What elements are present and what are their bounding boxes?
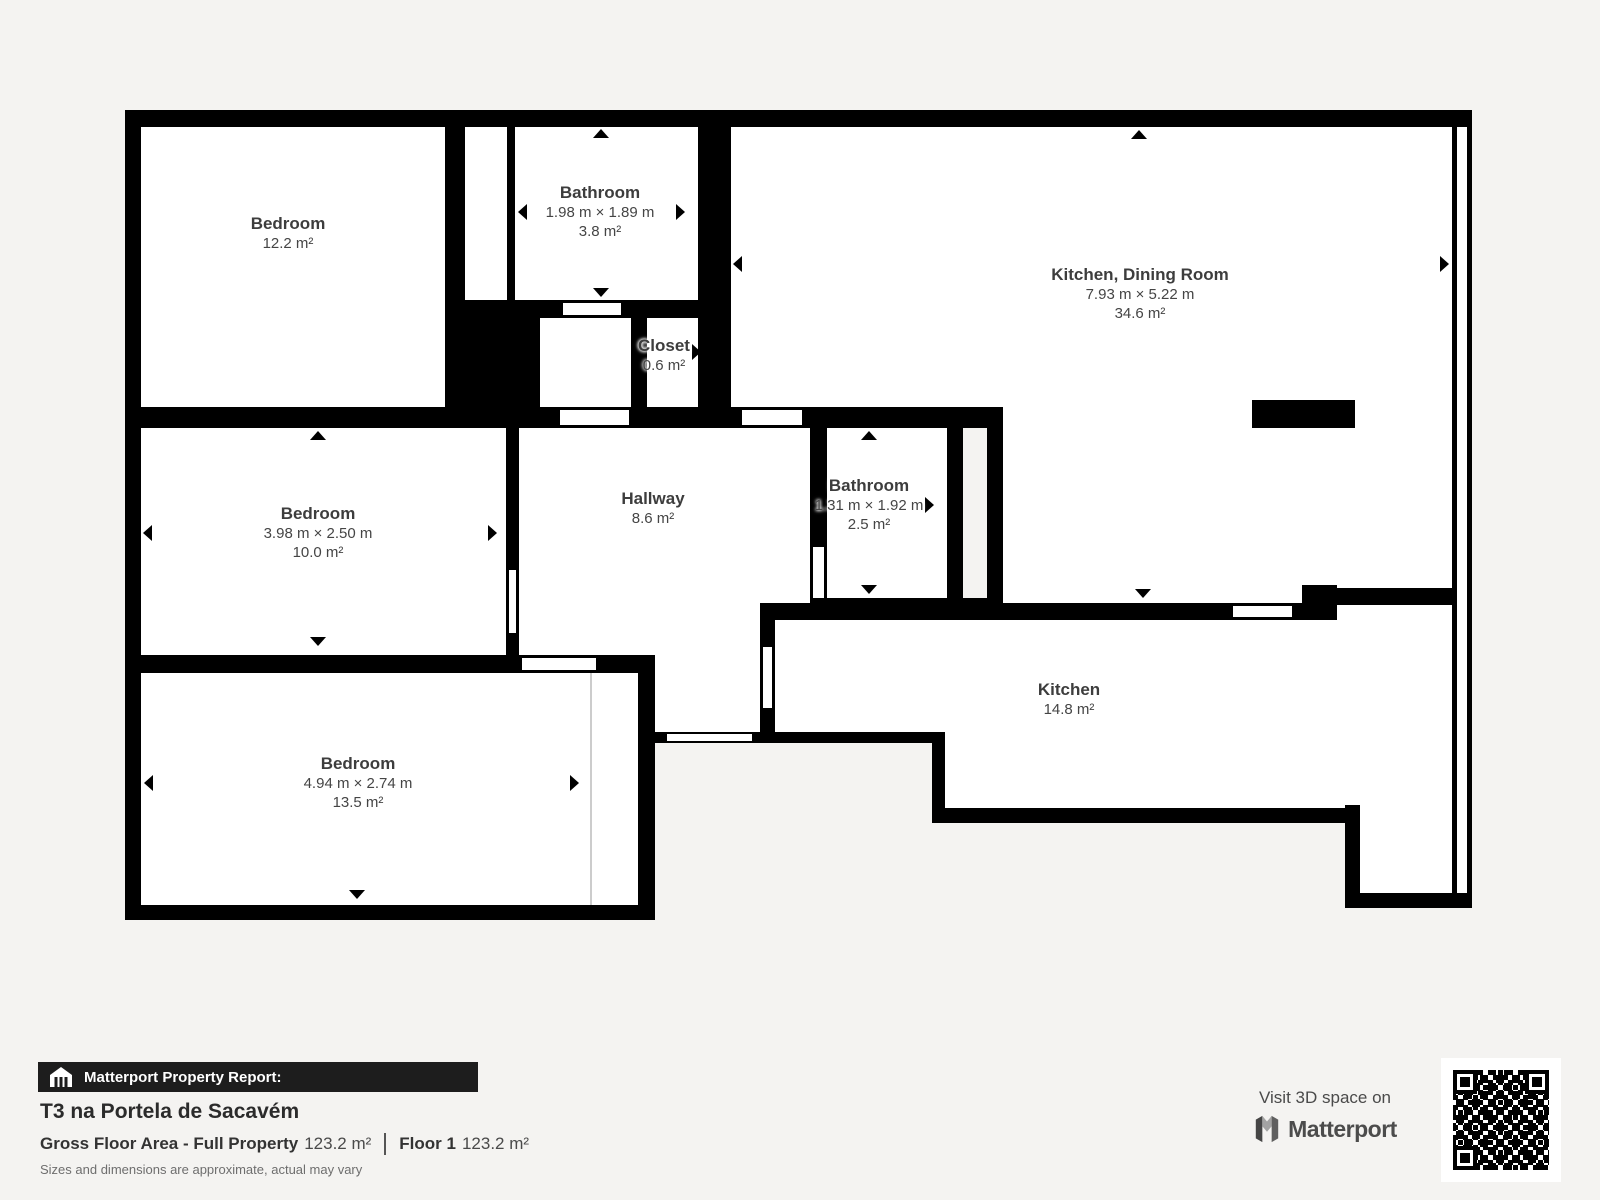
qr-finder xyxy=(1525,1070,1549,1094)
room-dims: 7.93 m × 5.22 m xyxy=(1051,285,1229,304)
visit-3d-block: Visit 3D space on Matterport xyxy=(1230,1088,1420,1144)
wall xyxy=(596,655,655,673)
room-name: Kitchen, Dining Room xyxy=(1051,265,1229,285)
wall xyxy=(638,655,655,920)
room-area: 0.6 m² xyxy=(638,356,690,375)
measure-arrow-down xyxy=(593,288,609,297)
qr-pattern xyxy=(1453,1070,1549,1170)
floor-value: 123.2 m² xyxy=(462,1134,529,1154)
room-label-hallway: Hallway 8.6 m² xyxy=(621,489,684,528)
door-opening xyxy=(760,647,775,708)
matterport-logo: Matterport xyxy=(1230,1114,1420,1144)
disclaimer-text: Sizes and dimensions are approximate, ac… xyxy=(40,1162,362,1177)
wall xyxy=(987,428,1003,603)
window-frame xyxy=(1467,110,1472,908)
report-header-label: Matterport Property Report: xyxy=(84,1069,282,1086)
property-title: T3 na Portela de Sacavém xyxy=(40,1100,299,1124)
measure-arrow-up xyxy=(349,659,365,668)
room-dims: 1.98 m × 1.89 m xyxy=(546,203,655,222)
measure-arrow-right xyxy=(925,497,934,513)
door-opening xyxy=(560,407,629,428)
room-dims: 4.94 m × 2.74 m xyxy=(304,774,413,793)
wall xyxy=(125,110,141,920)
room-dims: 1.31 m × 1.92 m xyxy=(815,496,924,515)
measure-arrow-up xyxy=(593,129,609,138)
wall xyxy=(445,126,465,306)
measure-arrow-right xyxy=(570,775,579,791)
wall xyxy=(125,905,655,920)
door-opening xyxy=(522,655,596,673)
measure-arrow-left xyxy=(733,256,742,272)
room-name: Hallway xyxy=(621,489,684,509)
wall xyxy=(947,428,963,603)
wall xyxy=(1302,585,1337,620)
matterport-logo-text: Matterport xyxy=(1288,1116,1397,1143)
wall xyxy=(125,110,1471,127)
floor-area-summary: Gross Floor Area - Full Property 123.2 m… xyxy=(40,1133,529,1155)
room-area: 8.6 m² xyxy=(621,509,684,528)
room-area: 3.8 m² xyxy=(546,222,655,241)
gfa-value: 123.2 m² xyxy=(304,1134,371,1154)
report-header-bar: Matterport Property Report: xyxy=(38,1062,478,1092)
room-label-bathroom2: Bathroom 1.31 m × 1.92 m 2.5 m² xyxy=(815,476,924,534)
room-area: 34.6 m² xyxy=(1051,304,1229,323)
kitchen-counter xyxy=(1252,400,1355,428)
measure-arrow-right xyxy=(692,344,701,360)
visit-3d-text: Visit 3D space on xyxy=(1230,1088,1420,1108)
measure-arrow-up xyxy=(861,431,877,440)
room-area: 2.5 m² xyxy=(815,515,924,534)
gfa-label: Gross Floor Area - Full Property xyxy=(40,1134,298,1154)
door-opening xyxy=(506,570,519,633)
floor-label: Floor 1 xyxy=(399,1134,456,1154)
door-opening xyxy=(563,300,621,318)
qr-finder xyxy=(1453,1070,1477,1094)
room-label-closet: Closet 0.6 m² xyxy=(638,336,690,375)
wall xyxy=(760,603,1302,620)
wall xyxy=(1345,893,1472,908)
window xyxy=(667,732,752,743)
wall xyxy=(698,110,731,428)
window-frame xyxy=(1452,120,1457,893)
wardrobe-partition-line xyxy=(590,673,592,905)
floor-plan: Bedroom 12.2 m² Bathroom 1.98 m × 1.89 m… xyxy=(0,0,1600,1020)
measure-arrow-left xyxy=(144,775,153,791)
room-name: Bedroom xyxy=(251,214,326,234)
room-area: 14.8 m² xyxy=(1038,700,1100,719)
wall xyxy=(945,808,1358,823)
room-name: Closet xyxy=(638,336,690,356)
measure-arrow-left xyxy=(143,525,152,541)
wall xyxy=(507,126,515,306)
measure-arrow-right xyxy=(488,525,497,541)
door-opening xyxy=(810,547,827,598)
measure-arrow-down xyxy=(310,637,326,646)
room-label-bedroom1: Bedroom 12.2 m² xyxy=(251,214,326,253)
measure-arrow-right xyxy=(676,204,685,220)
measure-arrow-down xyxy=(1135,589,1151,598)
house-icon xyxy=(50,1067,72,1087)
matterport-logo-icon xyxy=(1253,1114,1281,1144)
floor-area xyxy=(125,428,655,920)
wall xyxy=(932,732,945,823)
measure-arrow-down xyxy=(349,890,365,899)
room-name: Bedroom xyxy=(264,504,373,524)
qr-code xyxy=(1441,1058,1561,1182)
wall xyxy=(1337,588,1453,605)
room-area: 12.2 m² xyxy=(251,234,326,253)
qr-finder xyxy=(1453,1146,1477,1170)
room-name: Bathroom xyxy=(546,183,655,203)
door-opening xyxy=(742,407,802,428)
measure-arrow-up xyxy=(310,431,326,440)
room-label-bathroom1: Bathroom 1.98 m × 1.89 m 3.8 m² xyxy=(546,183,655,241)
measure-arrow-down xyxy=(861,585,877,594)
room-name: Bathroom xyxy=(815,476,924,496)
room-dims: 3.98 m × 2.50 m xyxy=(264,524,373,543)
room-name: Bedroom xyxy=(304,754,413,774)
room-area: 13.5 m² xyxy=(304,793,413,812)
measure-arrow-left xyxy=(518,204,527,220)
window xyxy=(1233,603,1292,620)
shaft xyxy=(963,428,987,603)
measure-arrow-right xyxy=(1440,256,1449,272)
room-label-kitchen: Kitchen 14.8 m² xyxy=(1038,680,1100,719)
room-label-bedroom3: Bedroom 4.94 m × 2.74 m 13.5 m² xyxy=(304,754,413,812)
measure-arrow-up xyxy=(1131,130,1147,139)
room-name: Kitchen xyxy=(1038,680,1100,700)
room-area: 10.0 m² xyxy=(264,543,373,562)
wall xyxy=(125,655,522,673)
divider xyxy=(384,1133,386,1155)
room-label-bedroom2: Bedroom 3.98 m × 2.50 m 10.0 m² xyxy=(264,504,373,562)
room-label-kitchen-dining: Kitchen, Dining Room 7.93 m × 5.22 m 34.… xyxy=(1051,265,1229,323)
